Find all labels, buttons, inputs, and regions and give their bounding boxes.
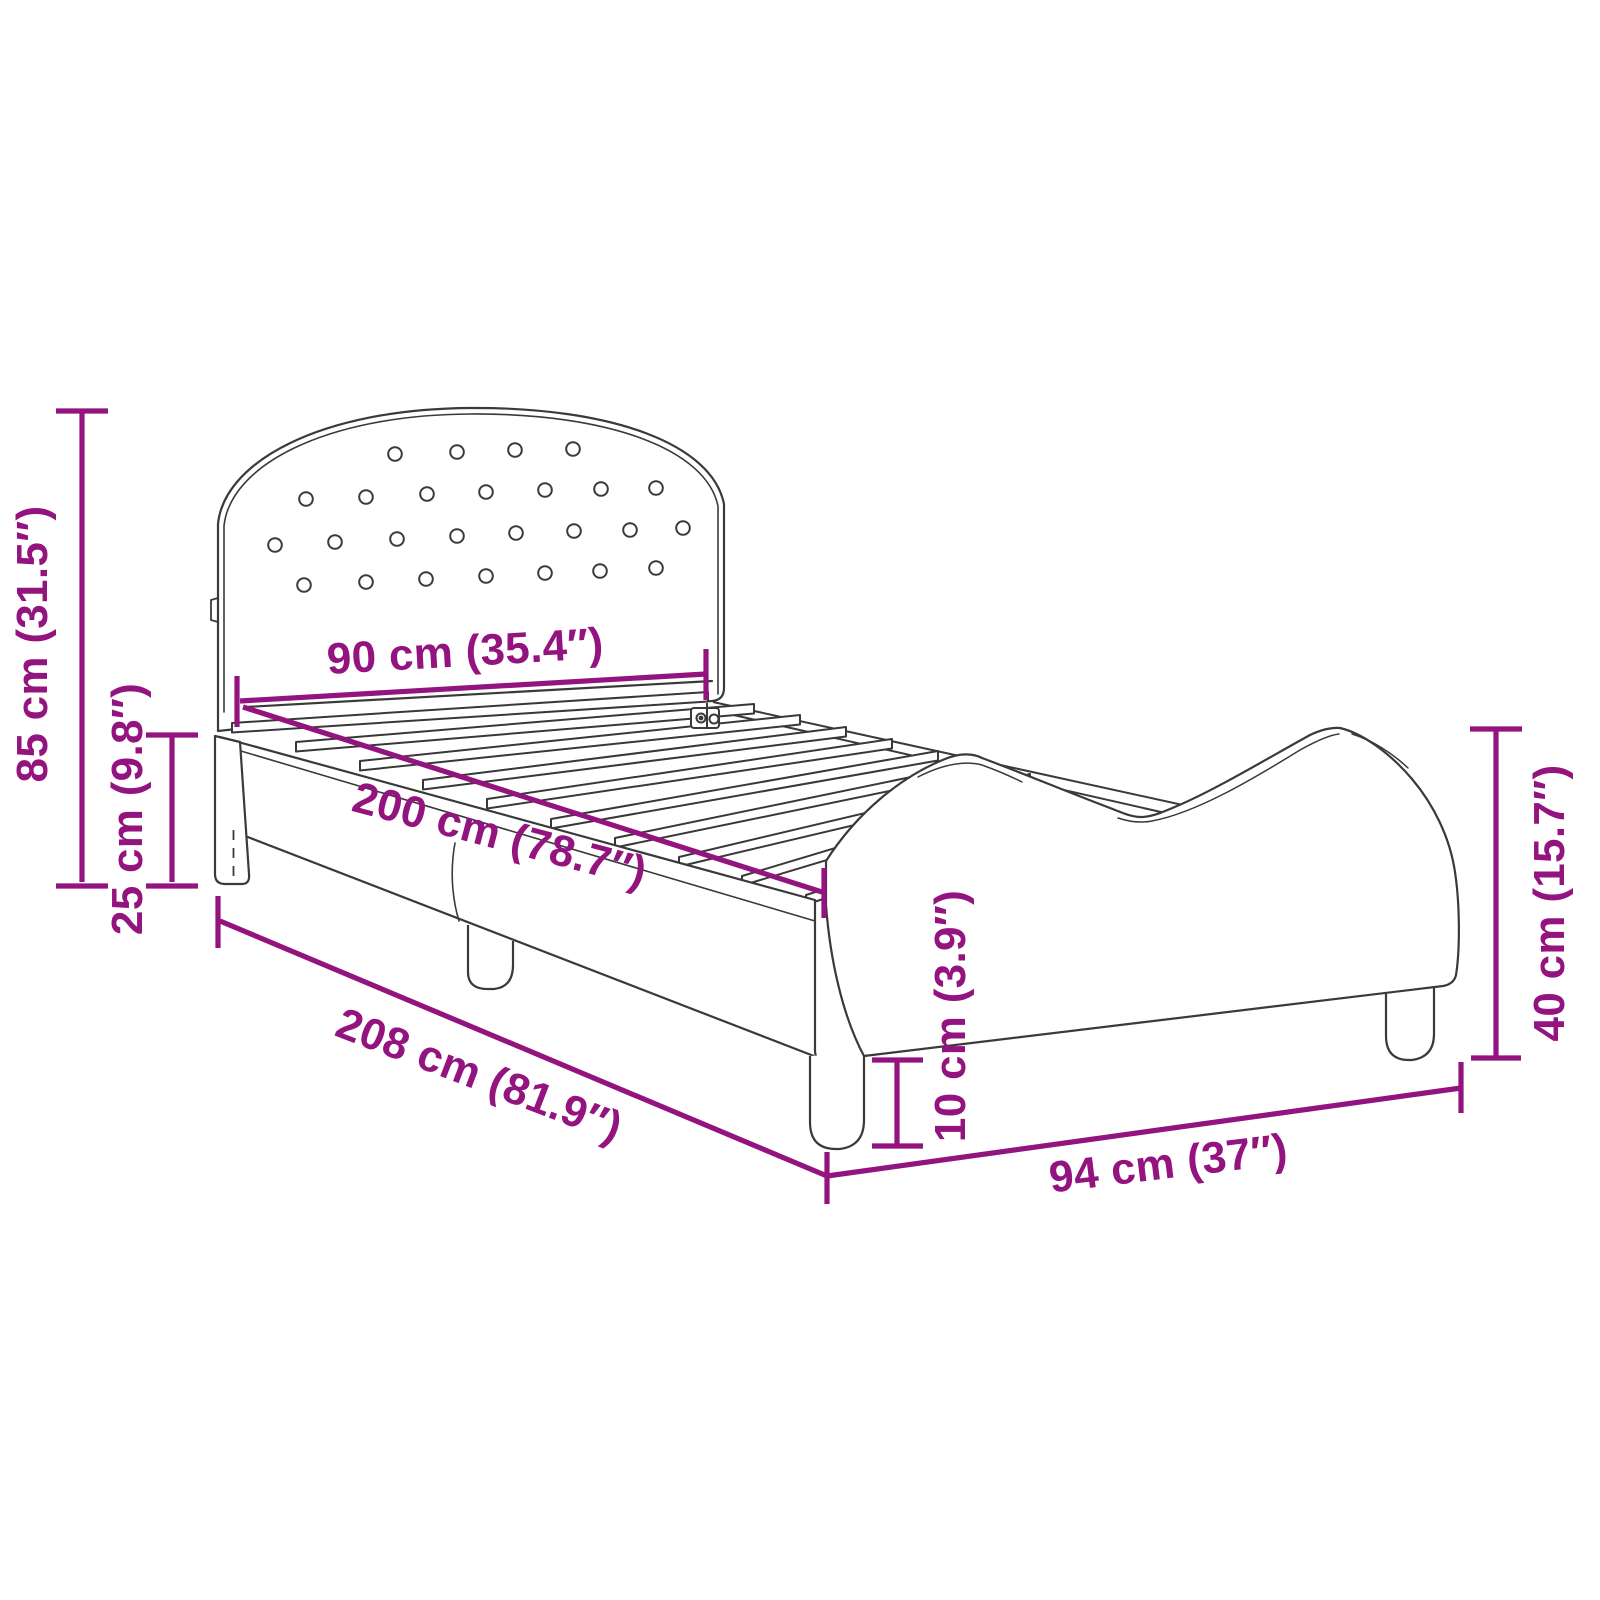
svg-text:85 cm (31.5″): 85 cm (31.5″) (8, 506, 57, 783)
svg-text:25 cm (9.8″): 25 cm (9.8″) (103, 683, 152, 935)
svg-text:10 cm (3.9″): 10 cm (3.9″) (926, 890, 975, 1142)
svg-text:40 cm (15.7″): 40 cm (15.7″) (1525, 765, 1574, 1042)
